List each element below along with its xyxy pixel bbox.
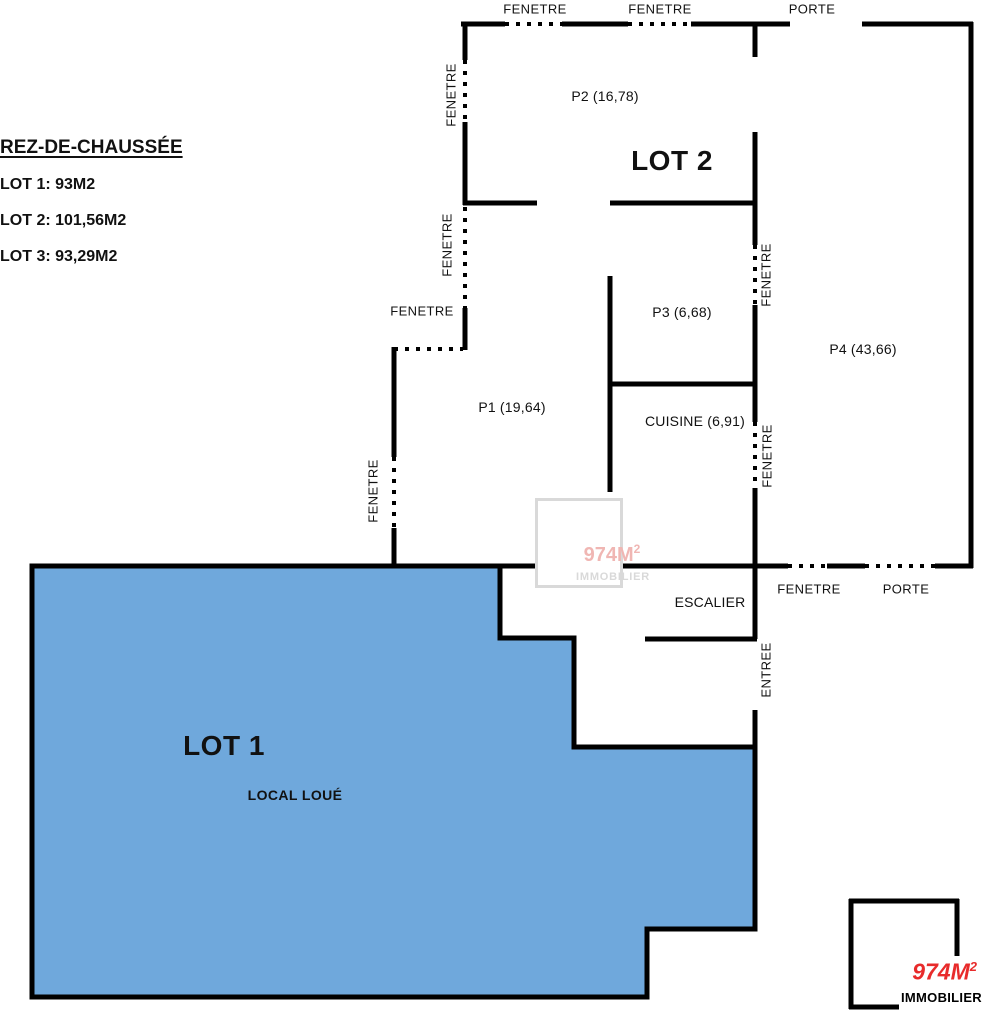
window-label: FENETRE bbox=[760, 243, 773, 306]
door-label: PORTE bbox=[883, 583, 930, 596]
door-label: PORTE bbox=[789, 3, 836, 16]
legend-lot3: LOT 3: 93,29M2 bbox=[0, 248, 117, 266]
watermark-brand: 974M2 bbox=[584, 543, 641, 565]
lot2-title: LOT 2 bbox=[631, 147, 713, 175]
lot1-title: LOT 1 bbox=[183, 732, 265, 760]
window-label: FENETRE bbox=[390, 305, 453, 318]
room-label-p1: P1 (19,64) bbox=[478, 400, 545, 414]
room-label-p2: P2 (16,78) bbox=[571, 89, 638, 103]
window-label: FENETRE bbox=[445, 63, 458, 126]
logo-brand-exponent: 2 bbox=[970, 959, 977, 974]
watermark-brand-text: 974M bbox=[584, 544, 634, 566]
legend-lot2: LOT 2: 101,56M2 bbox=[0, 212, 126, 230]
floor-plan-page: REZ-DE-CHAUSSÉE LOT 1: 93M2 LOT 2: 101,5… bbox=[0, 0, 1000, 1028]
lot1-area bbox=[32, 566, 755, 997]
window-label: FENETRE bbox=[503, 3, 566, 16]
window-label: FENETRE bbox=[441, 213, 454, 276]
room-label-p3: P3 (6,68) bbox=[652, 305, 711, 319]
room-label-escalier: ESCALIER bbox=[675, 595, 746, 609]
room-label-cuisine: CUISINE (6,91) bbox=[645, 414, 745, 428]
logo-subtitle: IMMOBILIER bbox=[897, 990, 982, 1005]
logo-brand-text: 974M bbox=[912, 959, 970, 985]
window-label: FENETRE bbox=[761, 424, 774, 487]
entrance-label: ENTREE bbox=[760, 642, 773, 697]
legend-lot1: LOT 1: 93M2 bbox=[0, 176, 95, 194]
window-label: FENETRE bbox=[777, 583, 840, 596]
local-loue-label: LOCAL LOUÉ bbox=[248, 788, 343, 802]
window-label: FENETRE bbox=[367, 459, 380, 522]
watermark-brand-exponent: 2 bbox=[634, 542, 641, 556]
room-label-p4: P4 (43,66) bbox=[829, 342, 896, 356]
logo-brand: 974M2 bbox=[897, 960, 977, 984]
watermark-subtitle: IMMOBILIER bbox=[576, 571, 650, 583]
page-title: REZ-DE-CHAUSSÉE bbox=[0, 137, 183, 159]
windows-and-doors bbox=[394, 24, 935, 566]
window-label: FENETRE bbox=[628, 3, 691, 16]
